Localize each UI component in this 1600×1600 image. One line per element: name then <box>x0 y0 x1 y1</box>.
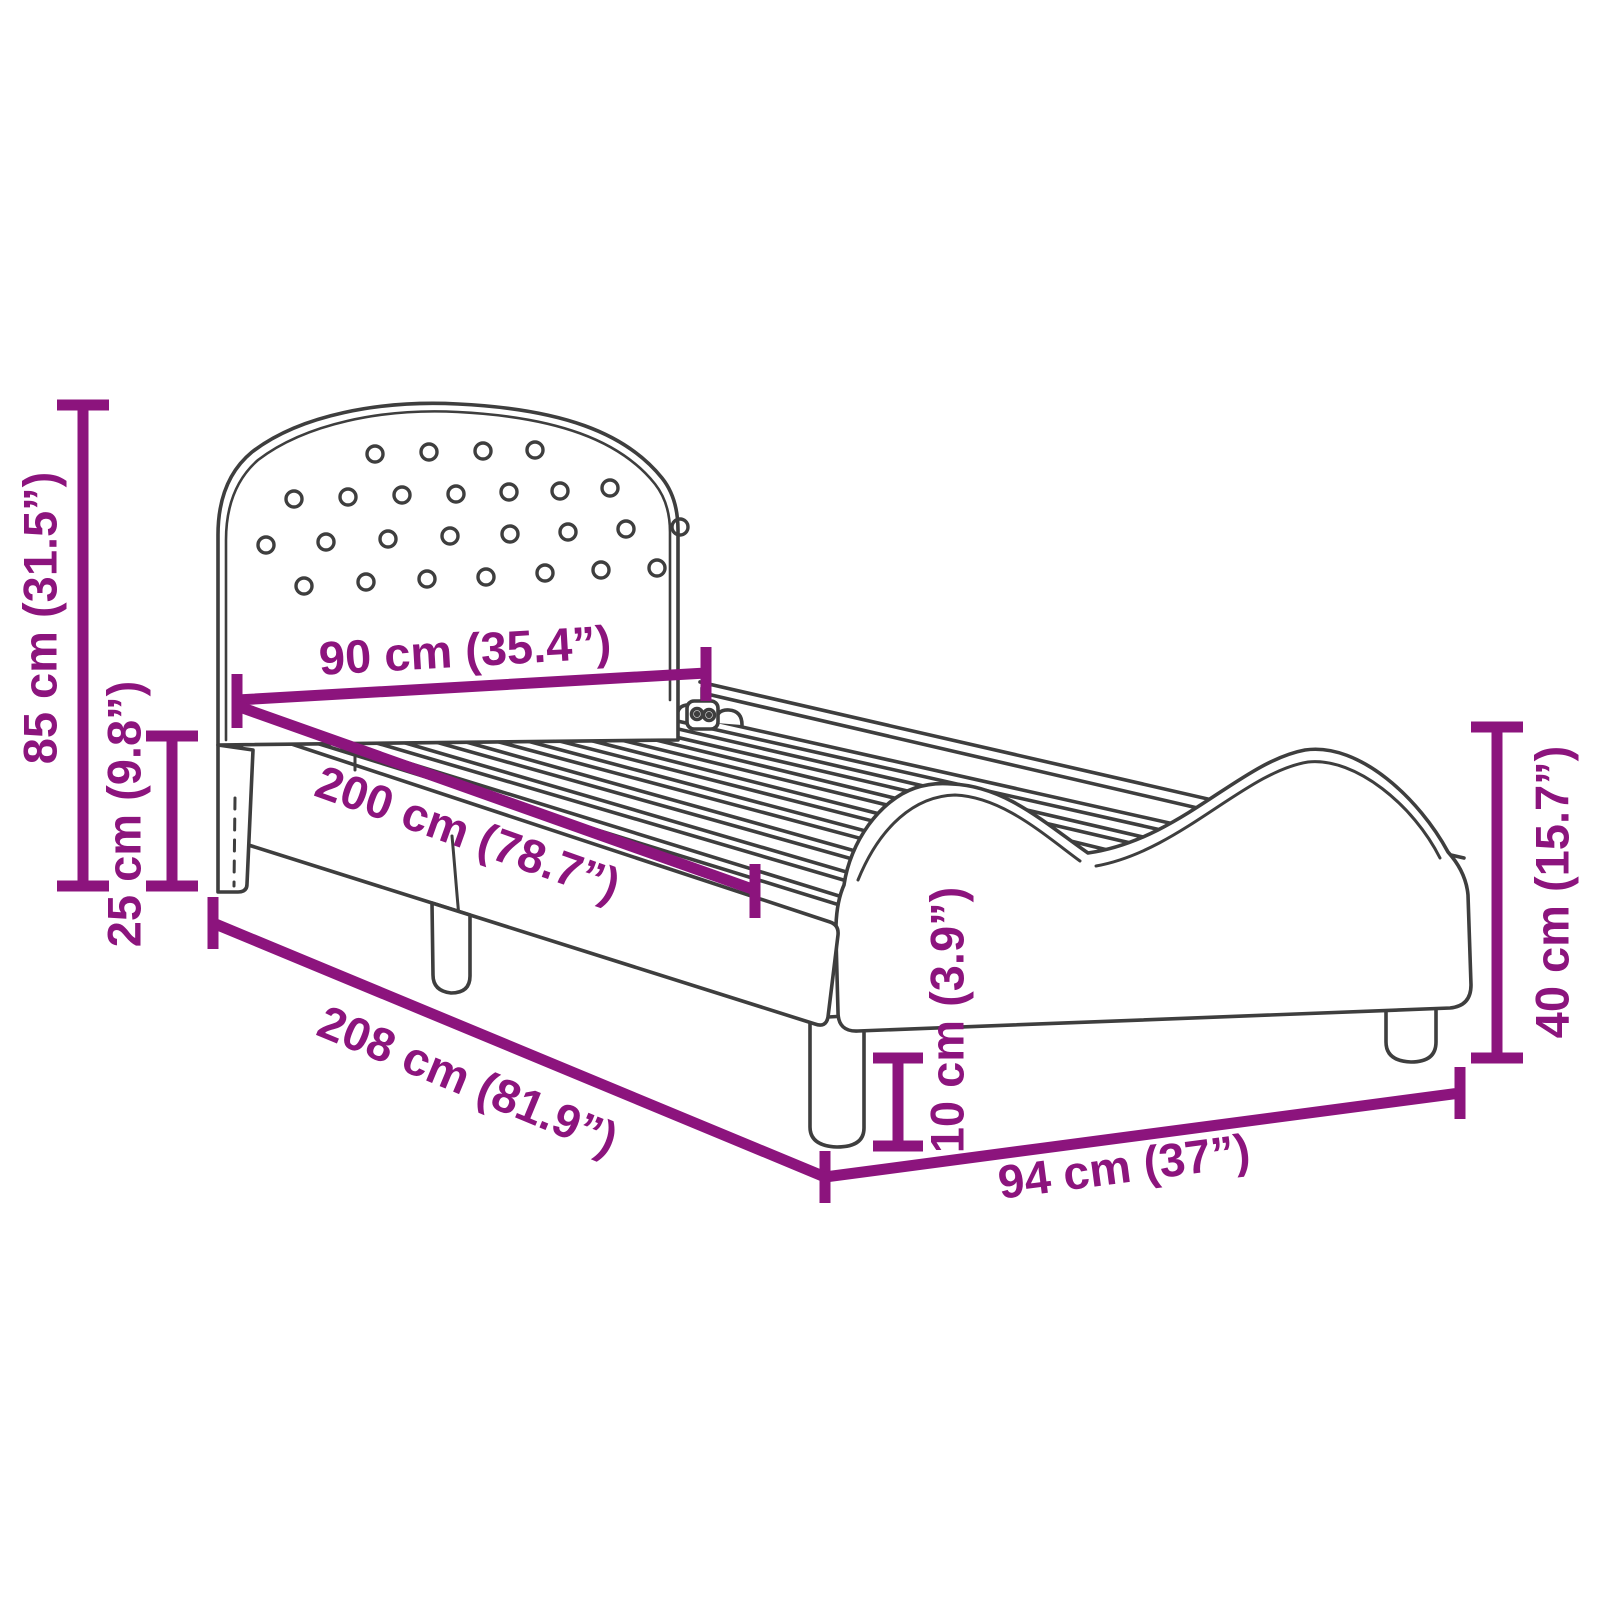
dimension-footboard-height: 40 cm (15.7”) <box>1471 727 1579 1058</box>
footboard-left-leg <box>810 1015 864 1147</box>
dim-label-85cm: 85 cm (31.5”) <box>14 472 67 765</box>
dim-label-10cm: 10 cm (3.9”) <box>921 887 974 1153</box>
dim-label-40cm: 40 cm (15.7”) <box>1526 746 1579 1039</box>
dim-label-25cm: 25 cm (9.8”) <box>98 681 151 947</box>
dimension-headboard-height: 85 cm (31.5”) <box>14 405 110 886</box>
footboard <box>810 749 1471 1147</box>
rail-left-leg <box>432 903 470 993</box>
diagram-canvas: 85 cm (31.5”) 25 cm (9.8”) 90 cm (35.4”)… <box>0 0 1600 1600</box>
bed-dimension-diagram: 85 cm (31.5”) 25 cm (9.8”) 90 cm (35.4”)… <box>0 0 1600 1600</box>
dimension-rail-height: 25 cm (9.8”) <box>98 681 199 947</box>
slat-end-cap <box>716 710 742 725</box>
